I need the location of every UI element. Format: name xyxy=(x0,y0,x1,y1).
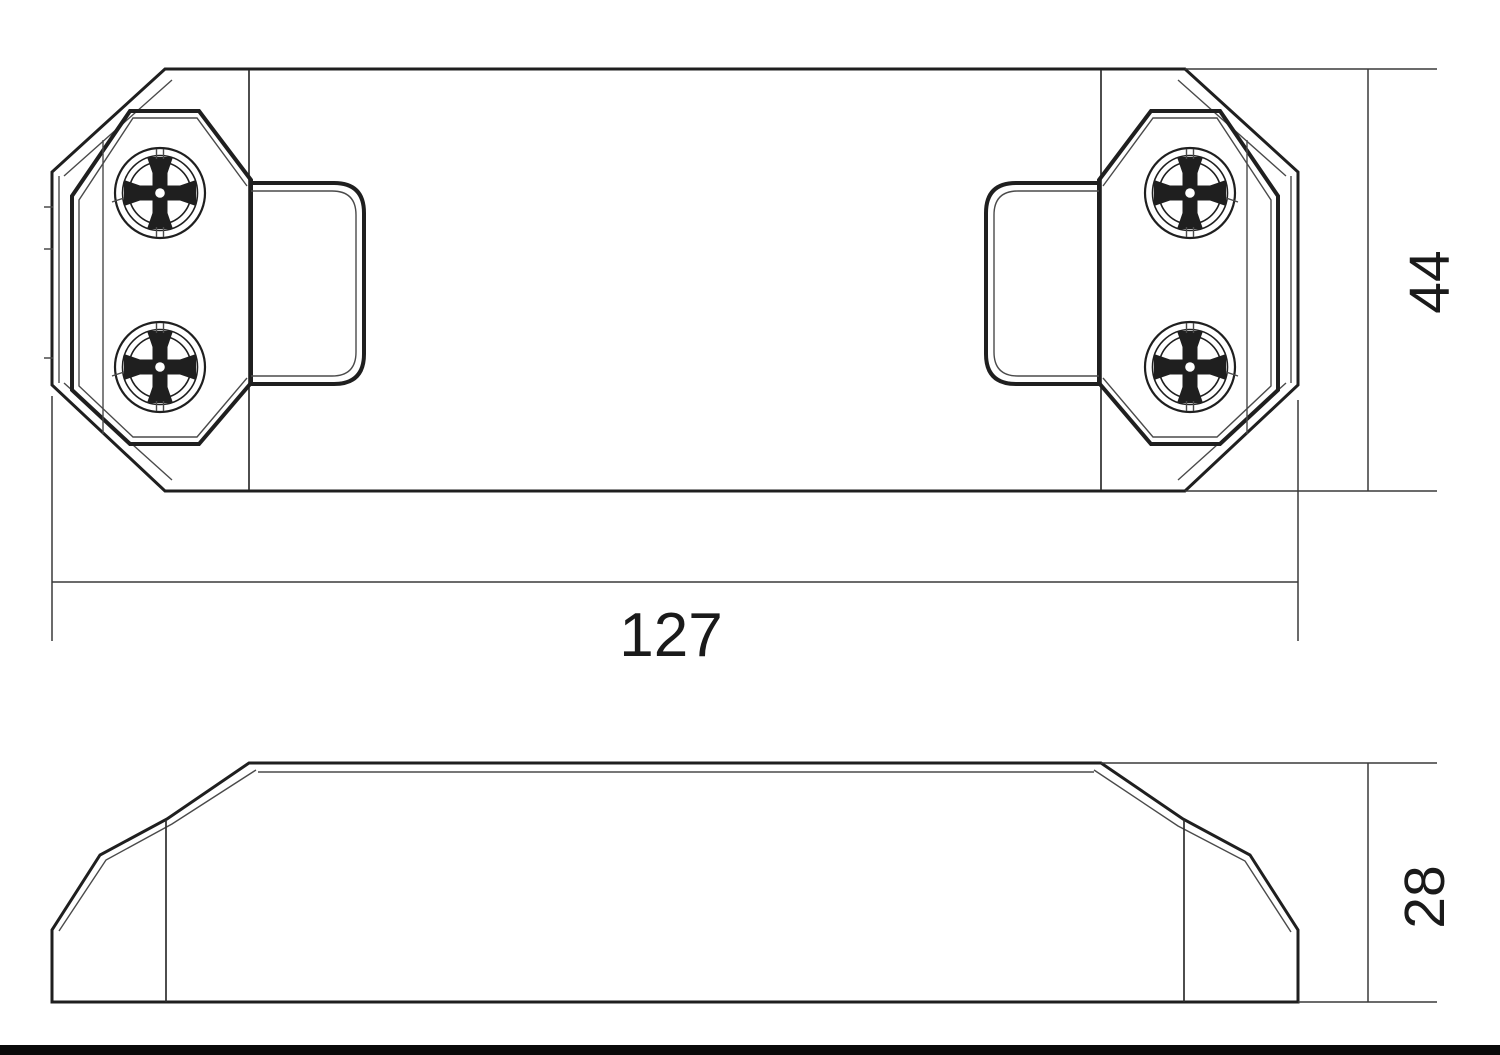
height-dimension-label: 44 xyxy=(1398,250,1462,313)
top-view xyxy=(44,69,1298,491)
side-view-right-chamfer-inner xyxy=(1094,770,1291,932)
depth-dimension-label: 28 xyxy=(1393,865,1457,928)
technical-drawing-page: 127 44 28 xyxy=(0,0,1500,1055)
end-cap-right xyxy=(986,70,1291,490)
side-view-body-outline xyxy=(52,763,1298,1002)
side-view xyxy=(52,763,1298,1002)
top-view-body-outline xyxy=(52,69,1298,491)
width-dimension-label: 127 xyxy=(619,601,722,670)
side-view-left-chamfer-inner xyxy=(59,770,256,931)
led-driver-dimension-drawing: 127 44 28 xyxy=(0,0,1500,1055)
end-cap-left xyxy=(59,70,364,490)
bottom-divider-bar xyxy=(0,1045,1500,1055)
dimension-width: 127 xyxy=(52,396,1298,670)
